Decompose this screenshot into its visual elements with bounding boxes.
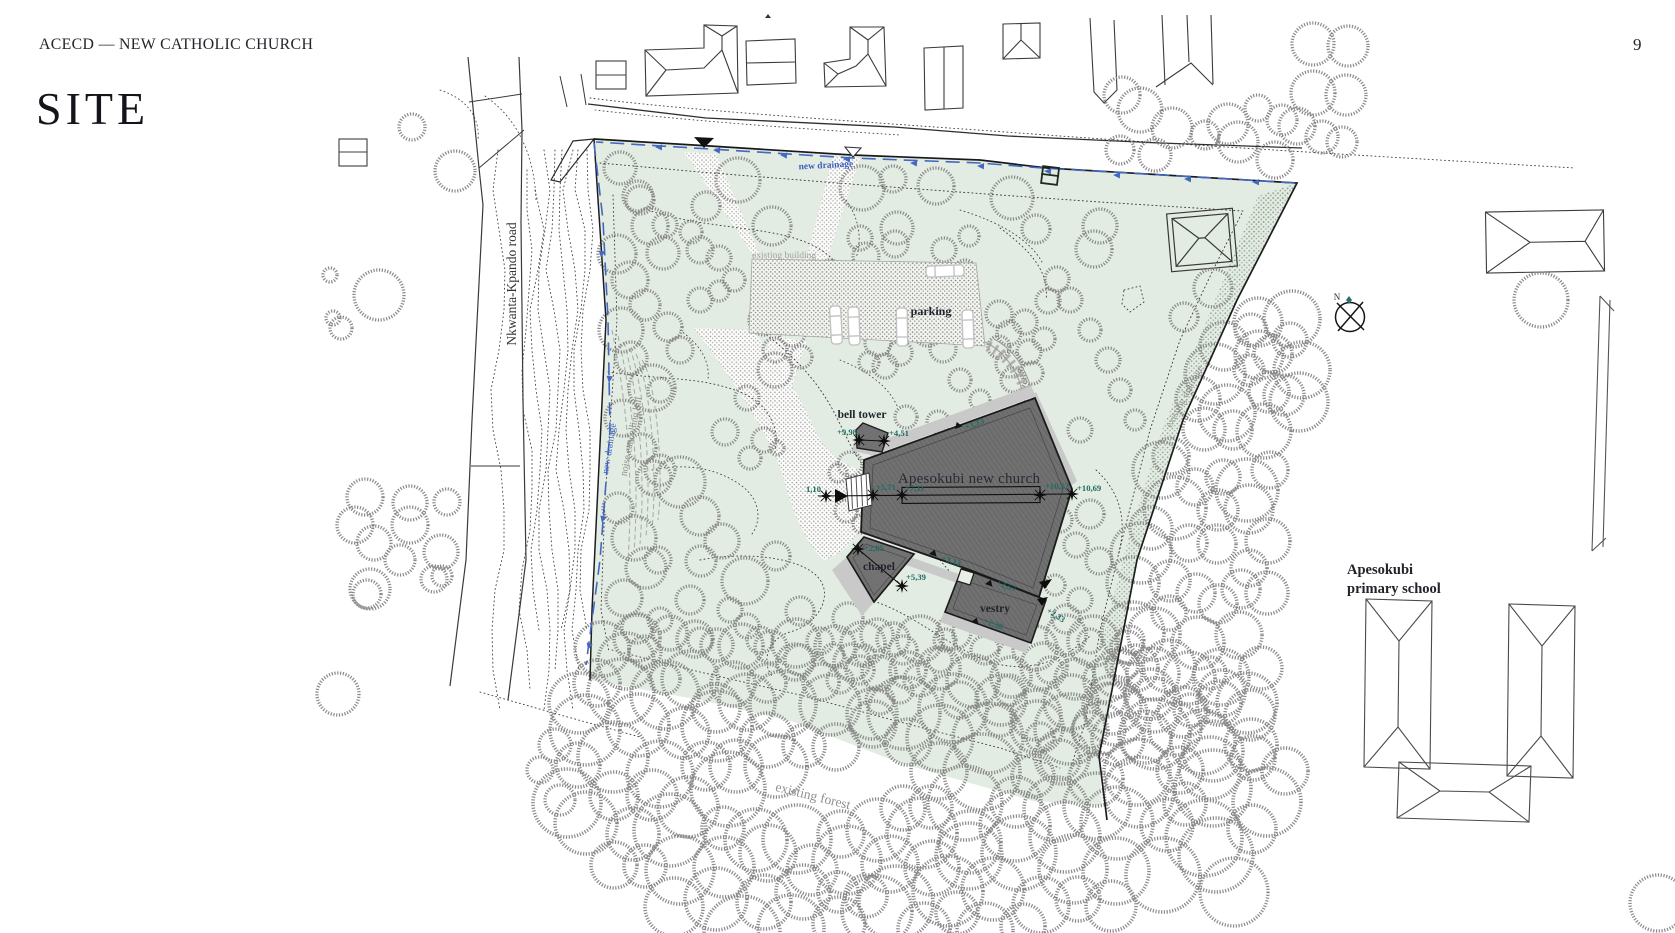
svg-text:parking: parking	[911, 304, 952, 318]
svg-text:+9,98: +9,98	[837, 427, 858, 437]
svg-text:ACECD — NEW CATHOLIC CHURCH: ACECD — NEW CATHOLIC CHURCH	[39, 36, 313, 53]
svg-text:bell tower: bell tower	[838, 409, 887, 421]
svg-text:+7,11: +7,11	[905, 483, 924, 493]
svg-text:+5,39: +5,39	[906, 572, 926, 582]
svg-text:+5,71: +5,71	[876, 482, 896, 492]
svg-text:+10,52: +10,52	[1045, 481, 1069, 491]
svg-text:Nkwanta-Kpando road: Nkwanta-Kpando road	[504, 222, 519, 346]
svg-text:primary school: primary school	[1347, 581, 1441, 597]
svg-text:+4,51: +4,51	[889, 428, 909, 438]
svg-text:+2,85: +2,85	[864, 543, 884, 553]
svg-text:N: N	[1334, 292, 1341, 302]
svg-text:9: 9	[1633, 35, 1642, 54]
svg-text:vestry: vestry	[980, 603, 1010, 615]
svg-text:existing forest: existing forest	[774, 779, 852, 812]
svg-text:chapel: chapel	[863, 561, 895, 573]
svg-text:1,10: 1,10	[806, 484, 821, 494]
svg-text:+10,69: +10,69	[1077, 483, 1101, 493]
svg-text:Apesokubi: Apesokubi	[1347, 562, 1413, 578]
svg-text:SITE: SITE	[36, 83, 149, 134]
svg-text:existing building: existing building	[752, 251, 816, 261]
